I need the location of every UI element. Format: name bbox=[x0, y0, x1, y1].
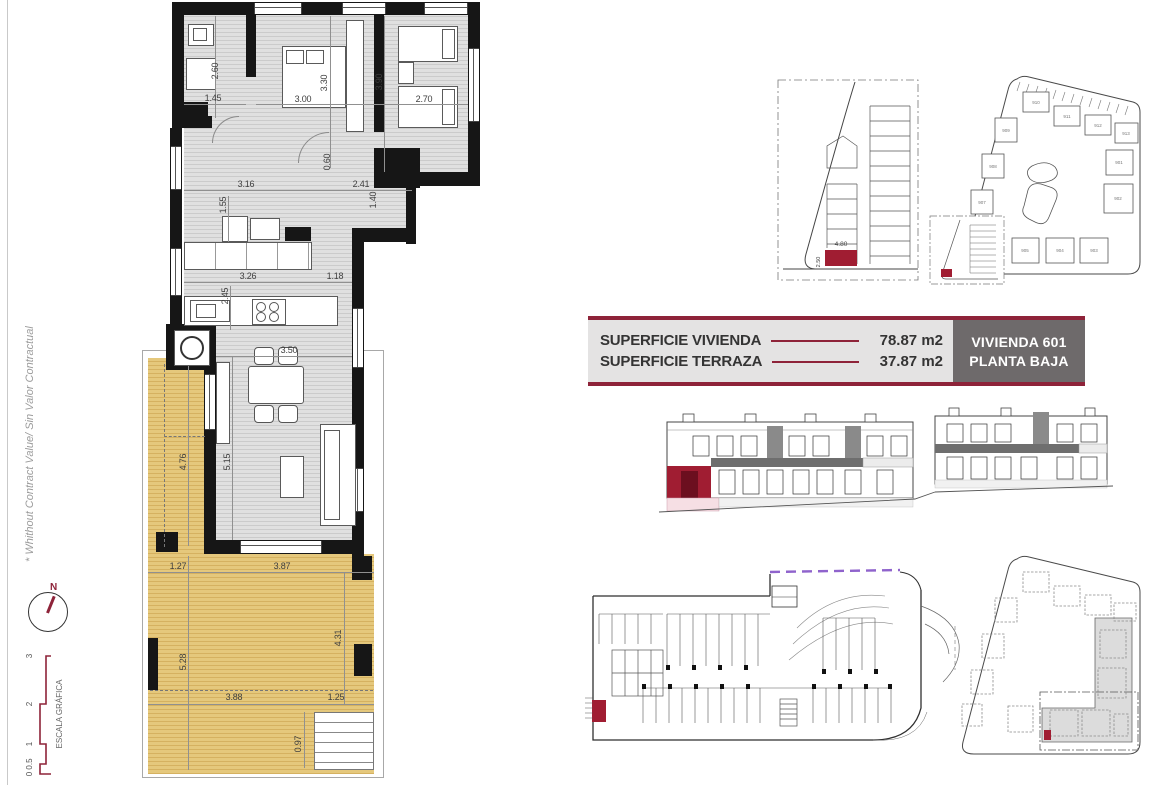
area-row-terraza: SUPERFICIE TERRAZA 37.87 m2 bbox=[600, 353, 943, 370]
dimension-label: 3.87 bbox=[274, 561, 291, 571]
wall bbox=[374, 148, 420, 188]
parking-plan: 4.80 2.50 bbox=[775, 72, 925, 290]
wall bbox=[246, 13, 256, 77]
area-value: 78.87 m2 bbox=[869, 332, 943, 349]
columns bbox=[642, 665, 892, 689]
terrace-pillar bbox=[354, 644, 372, 676]
sofa-cushions bbox=[324, 430, 340, 520]
dashed-line bbox=[150, 690, 373, 691]
dining-table bbox=[248, 366, 304, 404]
area-label: SUPERFICIE VIVIENDA bbox=[600, 332, 761, 349]
svg-text:902: 902 bbox=[1114, 196, 1122, 201]
pillow bbox=[306, 50, 324, 64]
window bbox=[171, 248, 181, 296]
chair bbox=[278, 405, 298, 423]
terrace-pillar bbox=[352, 556, 372, 580]
dimension-label: 4.76 bbox=[178, 454, 188, 471]
dimension-label: 3.26 bbox=[240, 271, 257, 281]
leader-line bbox=[772, 361, 859, 363]
sink-basin bbox=[196, 304, 216, 318]
dimension-label: 1.40 bbox=[368, 192, 378, 209]
dimension-label: 5.15 bbox=[222, 454, 232, 471]
ramp-arcs bbox=[789, 595, 893, 660]
leader-line bbox=[771, 340, 859, 342]
svg-text:905: 905 bbox=[1021, 248, 1029, 253]
site-plan-key bbox=[928, 538, 1170, 785]
area-value: 37.87 m2 bbox=[869, 353, 943, 370]
boundary-purple-dashed bbox=[770, 570, 900, 572]
window bbox=[342, 3, 386, 14]
dimension-label: 1.25 bbox=[328, 692, 345, 702]
dimension-label: 3.00 bbox=[295, 94, 312, 104]
kitchen-counter bbox=[184, 242, 312, 270]
garage-stairs bbox=[780, 699, 797, 726]
dimension-label: 3.16 bbox=[238, 179, 255, 189]
dashed-line bbox=[164, 364, 165, 547]
parking-inset bbox=[930, 216, 1004, 284]
dimension-label: 0.60 bbox=[322, 154, 332, 171]
terrace-side bbox=[148, 358, 204, 554]
window bbox=[424, 3, 468, 14]
highlighted-parking-spot bbox=[941, 269, 952, 277]
parking-dim-depth: 2.50 bbox=[816, 257, 822, 268]
dashed-line bbox=[164, 436, 205, 437]
wardrobe bbox=[346, 20, 364, 132]
cabinet bbox=[216, 362, 230, 444]
pillow bbox=[442, 29, 455, 59]
storage-rooms bbox=[612, 650, 663, 696]
dimension-label: 1.18 bbox=[327, 271, 344, 281]
area-label: SUPERFICIE TERRAZA bbox=[600, 353, 762, 370]
highlighted-parking-spot bbox=[825, 250, 857, 266]
stove-burner bbox=[256, 302, 266, 312]
dimension-label: 5.28 bbox=[178, 654, 188, 671]
dimension-label: 1.45 bbox=[205, 93, 222, 103]
svg-text:904: 904 bbox=[1056, 248, 1064, 253]
dimension-label: 3.90 bbox=[374, 74, 384, 91]
dimension-label: 2.60 bbox=[210, 63, 220, 80]
pillow bbox=[286, 50, 304, 64]
terrace-pillar bbox=[148, 638, 158, 690]
svg-text:907: 907 bbox=[978, 200, 986, 205]
coffee-table bbox=[280, 456, 304, 498]
dimension-label: 1.27 bbox=[170, 561, 187, 571]
window bbox=[353, 308, 363, 368]
toilet-tank bbox=[193, 28, 207, 41]
dimension-label: 3.30 bbox=[319, 75, 329, 92]
svg-text:912: 912 bbox=[1094, 123, 1102, 128]
dimension-label: 3.50 bbox=[281, 345, 298, 355]
dimension-label: 3.88 bbox=[226, 692, 243, 702]
dimension-label: 2.41 bbox=[353, 179, 370, 189]
svg-text:903: 903 bbox=[1090, 248, 1098, 253]
area-row-vivienda: SUPERFICIE VIVIENDA 78.87 m2 bbox=[600, 332, 943, 349]
wall bbox=[285, 227, 311, 241]
stove-burner bbox=[256, 312, 266, 322]
dimension-label: 2.70 bbox=[416, 94, 433, 104]
dimension-label: 0.97 bbox=[293, 736, 303, 753]
window bbox=[171, 146, 181, 190]
site-plan-overview: 910 911 912 913 909 908 907 906 905 904 … bbox=[928, 60, 1170, 292]
wall bbox=[182, 116, 212, 128]
stairs bbox=[314, 712, 374, 770]
pillow bbox=[442, 89, 455, 125]
kitchen-appliance bbox=[250, 218, 280, 240]
wall bbox=[352, 228, 416, 242]
svg-text:908: 908 bbox=[989, 164, 997, 169]
dimension-label: 4.31 bbox=[333, 630, 343, 647]
area-table: SUPERFICIE VIVIENDA 78.87 m2 SUPERFICIE … bbox=[588, 316, 1085, 386]
svg-text:910: 910 bbox=[1032, 100, 1040, 105]
terrace-pillar bbox=[156, 532, 178, 552]
terrace-door bbox=[240, 541, 322, 553]
floor-plan: 2.60 1.45 3.00 3.30 3.90 2.70 0.60 3.16 … bbox=[0, 0, 500, 785]
parking-dim-width: 4.80 bbox=[835, 241, 848, 248]
svg-text:909: 909 bbox=[1002, 128, 1010, 133]
page: { "colors": { "accent": "#8E2339", "high… bbox=[0, 0, 1170, 785]
stove-burner bbox=[269, 312, 279, 322]
window bbox=[254, 3, 302, 14]
highlighted-parking-spot bbox=[592, 700, 606, 722]
wall bbox=[416, 172, 480, 186]
chair bbox=[254, 405, 274, 423]
svg-text:913: 913 bbox=[1122, 131, 1130, 136]
dimension-label: 1.55 bbox=[218, 197, 228, 214]
dimension-label: 2.45 bbox=[220, 288, 230, 305]
window bbox=[205, 374, 215, 430]
highlighted-unit bbox=[1044, 730, 1051, 740]
window bbox=[469, 48, 479, 122]
stove-burner bbox=[269, 302, 279, 312]
elevation-drawing bbox=[653, 400, 1170, 522]
nightstand bbox=[398, 62, 414, 84]
unit-number: VIVIENDA 601 bbox=[971, 334, 1066, 350]
svg-text:911: 911 bbox=[1063, 114, 1071, 119]
unit-badge: VIVIENDA 601 PLANTA BAJA bbox=[953, 320, 1085, 382]
unit-floor: PLANTA BAJA bbox=[969, 353, 1068, 369]
svg-text:901: 901 bbox=[1115, 160, 1123, 165]
washing-machine-drum bbox=[180, 336, 204, 360]
kitchen-appliance bbox=[222, 216, 248, 242]
